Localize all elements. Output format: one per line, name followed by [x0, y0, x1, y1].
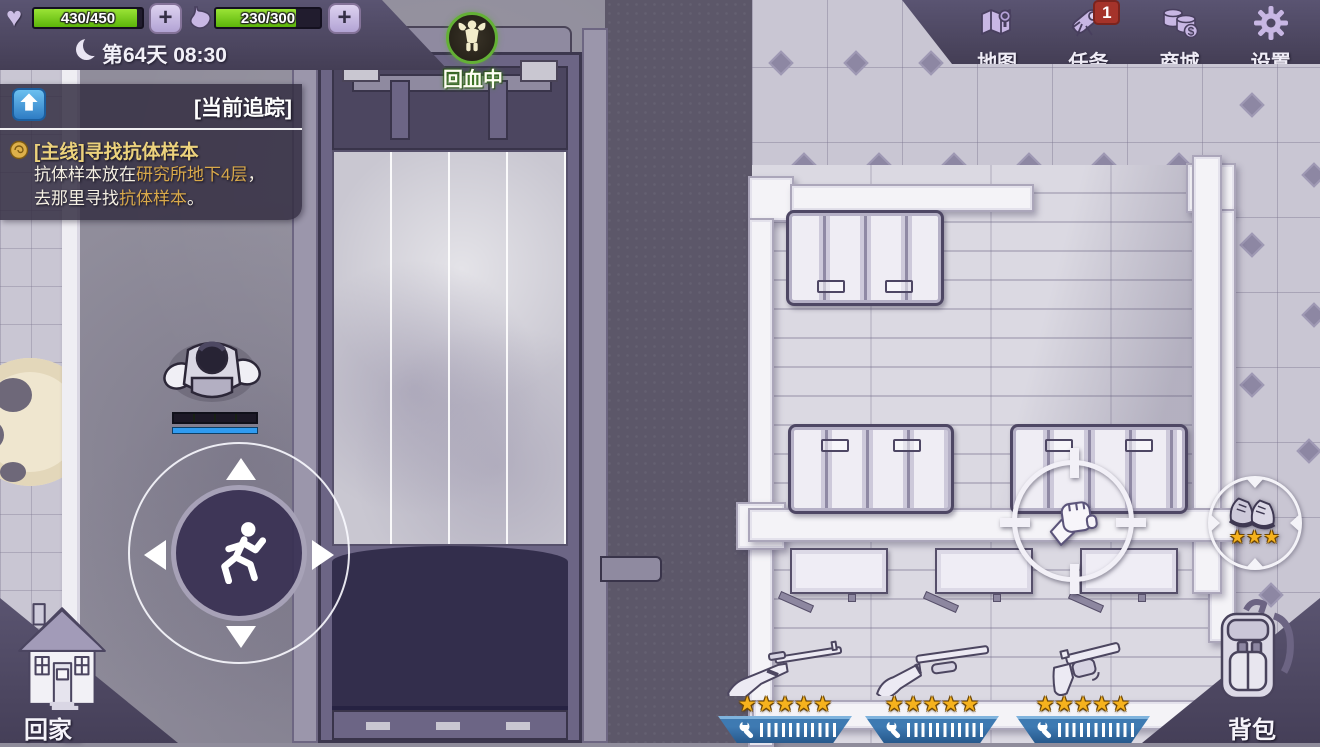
crate-handle	[817, 280, 845, 293]
elevator-dark-cargo	[332, 546, 568, 710]
durability-ticks	[760, 723, 840, 737]
satiety-plus-button[interactable]: +	[328, 3, 361, 34]
weapon-slot-shotgun[interactable]: ★★★★★	[855, 640, 1009, 743]
attack-reticle[interactable]	[1012, 460, 1134, 582]
character-health-fill	[174, 414, 253, 422]
wrench-icon	[738, 720, 758, 740]
joystick-arrow-left	[144, 540, 166, 570]
quest-text: 去那里寻找	[34, 189, 119, 208]
shop-coins-icon: $	[1161, 6, 1199, 45]
weapon-slot-revolver[interactable]: ★★★★★	[1006, 640, 1160, 743]
elevator-bottom-frame	[332, 710, 568, 740]
health-plus-button[interactable]: +	[149, 3, 182, 34]
joystick-arrow-up	[226, 458, 256, 480]
quest-text: 抗体样本放在	[34, 165, 136, 184]
backpack-button-label: 背包	[1228, 710, 1276, 745]
quest-title[interactable]: [主线]寻找抗体样本	[34, 137, 199, 164]
menu-item-shop[interactable]: $ 商城	[1138, 0, 1222, 64]
quest-scroll-icon	[8, 139, 30, 166]
reticle-tick	[1070, 564, 1079, 594]
desk	[935, 548, 1033, 594]
satiety-bar: 230/300	[214, 7, 322, 29]
wrench-icon	[885, 720, 905, 740]
quest-tracker-header: [当前追踪]	[194, 92, 292, 122]
quest-tracker-panel: [当前追踪] [主线]寻找抗体样本 抗体样本放在研究所地下4层，去那里寻找抗体样…	[0, 84, 302, 220]
elevator-side-handle	[600, 556, 662, 582]
movement-joystick[interactable]	[128, 442, 350, 664]
map-icon	[979, 6, 1015, 45]
reticle-tick	[1116, 518, 1146, 527]
health-value: 430/450	[34, 9, 142, 27]
reticle-tick	[1000, 518, 1030, 527]
pickup-star-rating: ★★★	[1211, 527, 1299, 548]
day-time-label: 第64天 08:30	[102, 39, 227, 69]
crate-handle	[893, 439, 921, 452]
crate-handle	[1045, 439, 1073, 452]
storage-crate[interactable]	[786, 210, 944, 306]
quest-text-highlight: 研究所地下4层	[136, 165, 247, 184]
quest-text: ，	[247, 165, 264, 184]
crate-handle	[885, 280, 913, 293]
tasks-badge: 1	[1093, 0, 1120, 25]
health-bar: 430/450	[32, 7, 144, 29]
elevator-platform	[332, 150, 568, 546]
fist-icon	[1045, 489, 1103, 552]
runner-icon	[206, 518, 272, 589]
house-icon[interactable]	[10, 598, 114, 717]
durability-ticks	[907, 723, 987, 737]
crate-handle	[1125, 439, 1153, 452]
quest-collapse-button[interactable]	[12, 88, 46, 121]
wrench-icon	[1036, 720, 1056, 740]
player-character	[158, 320, 266, 416]
storage-crate[interactable]	[788, 424, 954, 514]
home-button-label: 回家	[24, 710, 72, 745]
scene-mural-blob	[0, 462, 26, 482]
durability-ticks	[1058, 723, 1138, 737]
health-heart-icon: ♥	[6, 4, 22, 31]
weapon-durability-bar	[865, 716, 999, 743]
weapon-durability-bar	[1016, 716, 1150, 743]
quest-text: 。	[187, 189, 204, 208]
weapon-slot-rifle[interactable]: ★★★★★	[708, 640, 862, 743]
menu-item-map[interactable]: 地图	[955, 0, 1039, 64]
backpack-icon[interactable]	[1212, 594, 1304, 711]
scene-dark-wall	[605, 0, 755, 743]
pickup-notch	[1245, 558, 1265, 569]
hud-top-right-panel: 地图 任务 1 $ 商城 设置	[902, 0, 1320, 64]
weapon-star-rating: ★★★★★	[855, 692, 1009, 717]
joystick-arrow-right	[312, 540, 334, 570]
moon-icon	[76, 39, 97, 60]
item-pickup-boots[interactable]: ★★★	[1208, 476, 1302, 570]
divider	[0, 128, 302, 130]
scene-mural-blob	[0, 420, 4, 450]
character-health-bar	[172, 412, 258, 424]
elevator-tab	[520, 60, 558, 82]
gear-icon	[1254, 6, 1288, 45]
weapon-star-rating: ★★★★★	[708, 692, 862, 717]
character-stamina-bar	[172, 427, 258, 434]
arrow-up-icon	[17, 90, 41, 119]
svg-text:$: $	[1187, 25, 1194, 39]
healing-buff-indicator	[446, 12, 498, 64]
menu-item-tasks[interactable]: 任务 1	[1046, 0, 1130, 64]
hud-top-left-panel: ♥ 430/450 + 230/300 + 第64天 08:30	[0, 0, 448, 70]
elevator-pillar	[390, 80, 410, 140]
quest-text-highlight: 抗体样本	[119, 189, 187, 208]
desk	[790, 548, 888, 594]
quest-description: 抗体样本放在研究所地下4层，去那里寻找抗体样本。	[34, 163, 294, 211]
crate-handle	[821, 439, 849, 452]
scene-mural-blob	[0, 378, 32, 412]
satiety-value: 230/300	[216, 9, 320, 27]
wall-beam-top	[790, 184, 1034, 212]
reticle-tick	[1070, 448, 1079, 478]
menu-item-settings[interactable]: 设置	[1229, 0, 1313, 64]
satiety-stomach-icon	[186, 5, 212, 36]
joystick-knob[interactable]	[171, 485, 307, 621]
weapon-durability-bar	[718, 716, 852, 743]
muscle-figure-icon	[453, 17, 491, 60]
game-screen: { "hud": { "health": {"value": "430/450"…	[0, 0, 1320, 743]
joystick-arrow-down	[226, 626, 256, 648]
healing-buff-label: 回血中	[436, 63, 510, 92]
elevator-rail-right	[582, 28, 608, 743]
weapon-star-rating: ★★★★★	[1006, 692, 1160, 717]
